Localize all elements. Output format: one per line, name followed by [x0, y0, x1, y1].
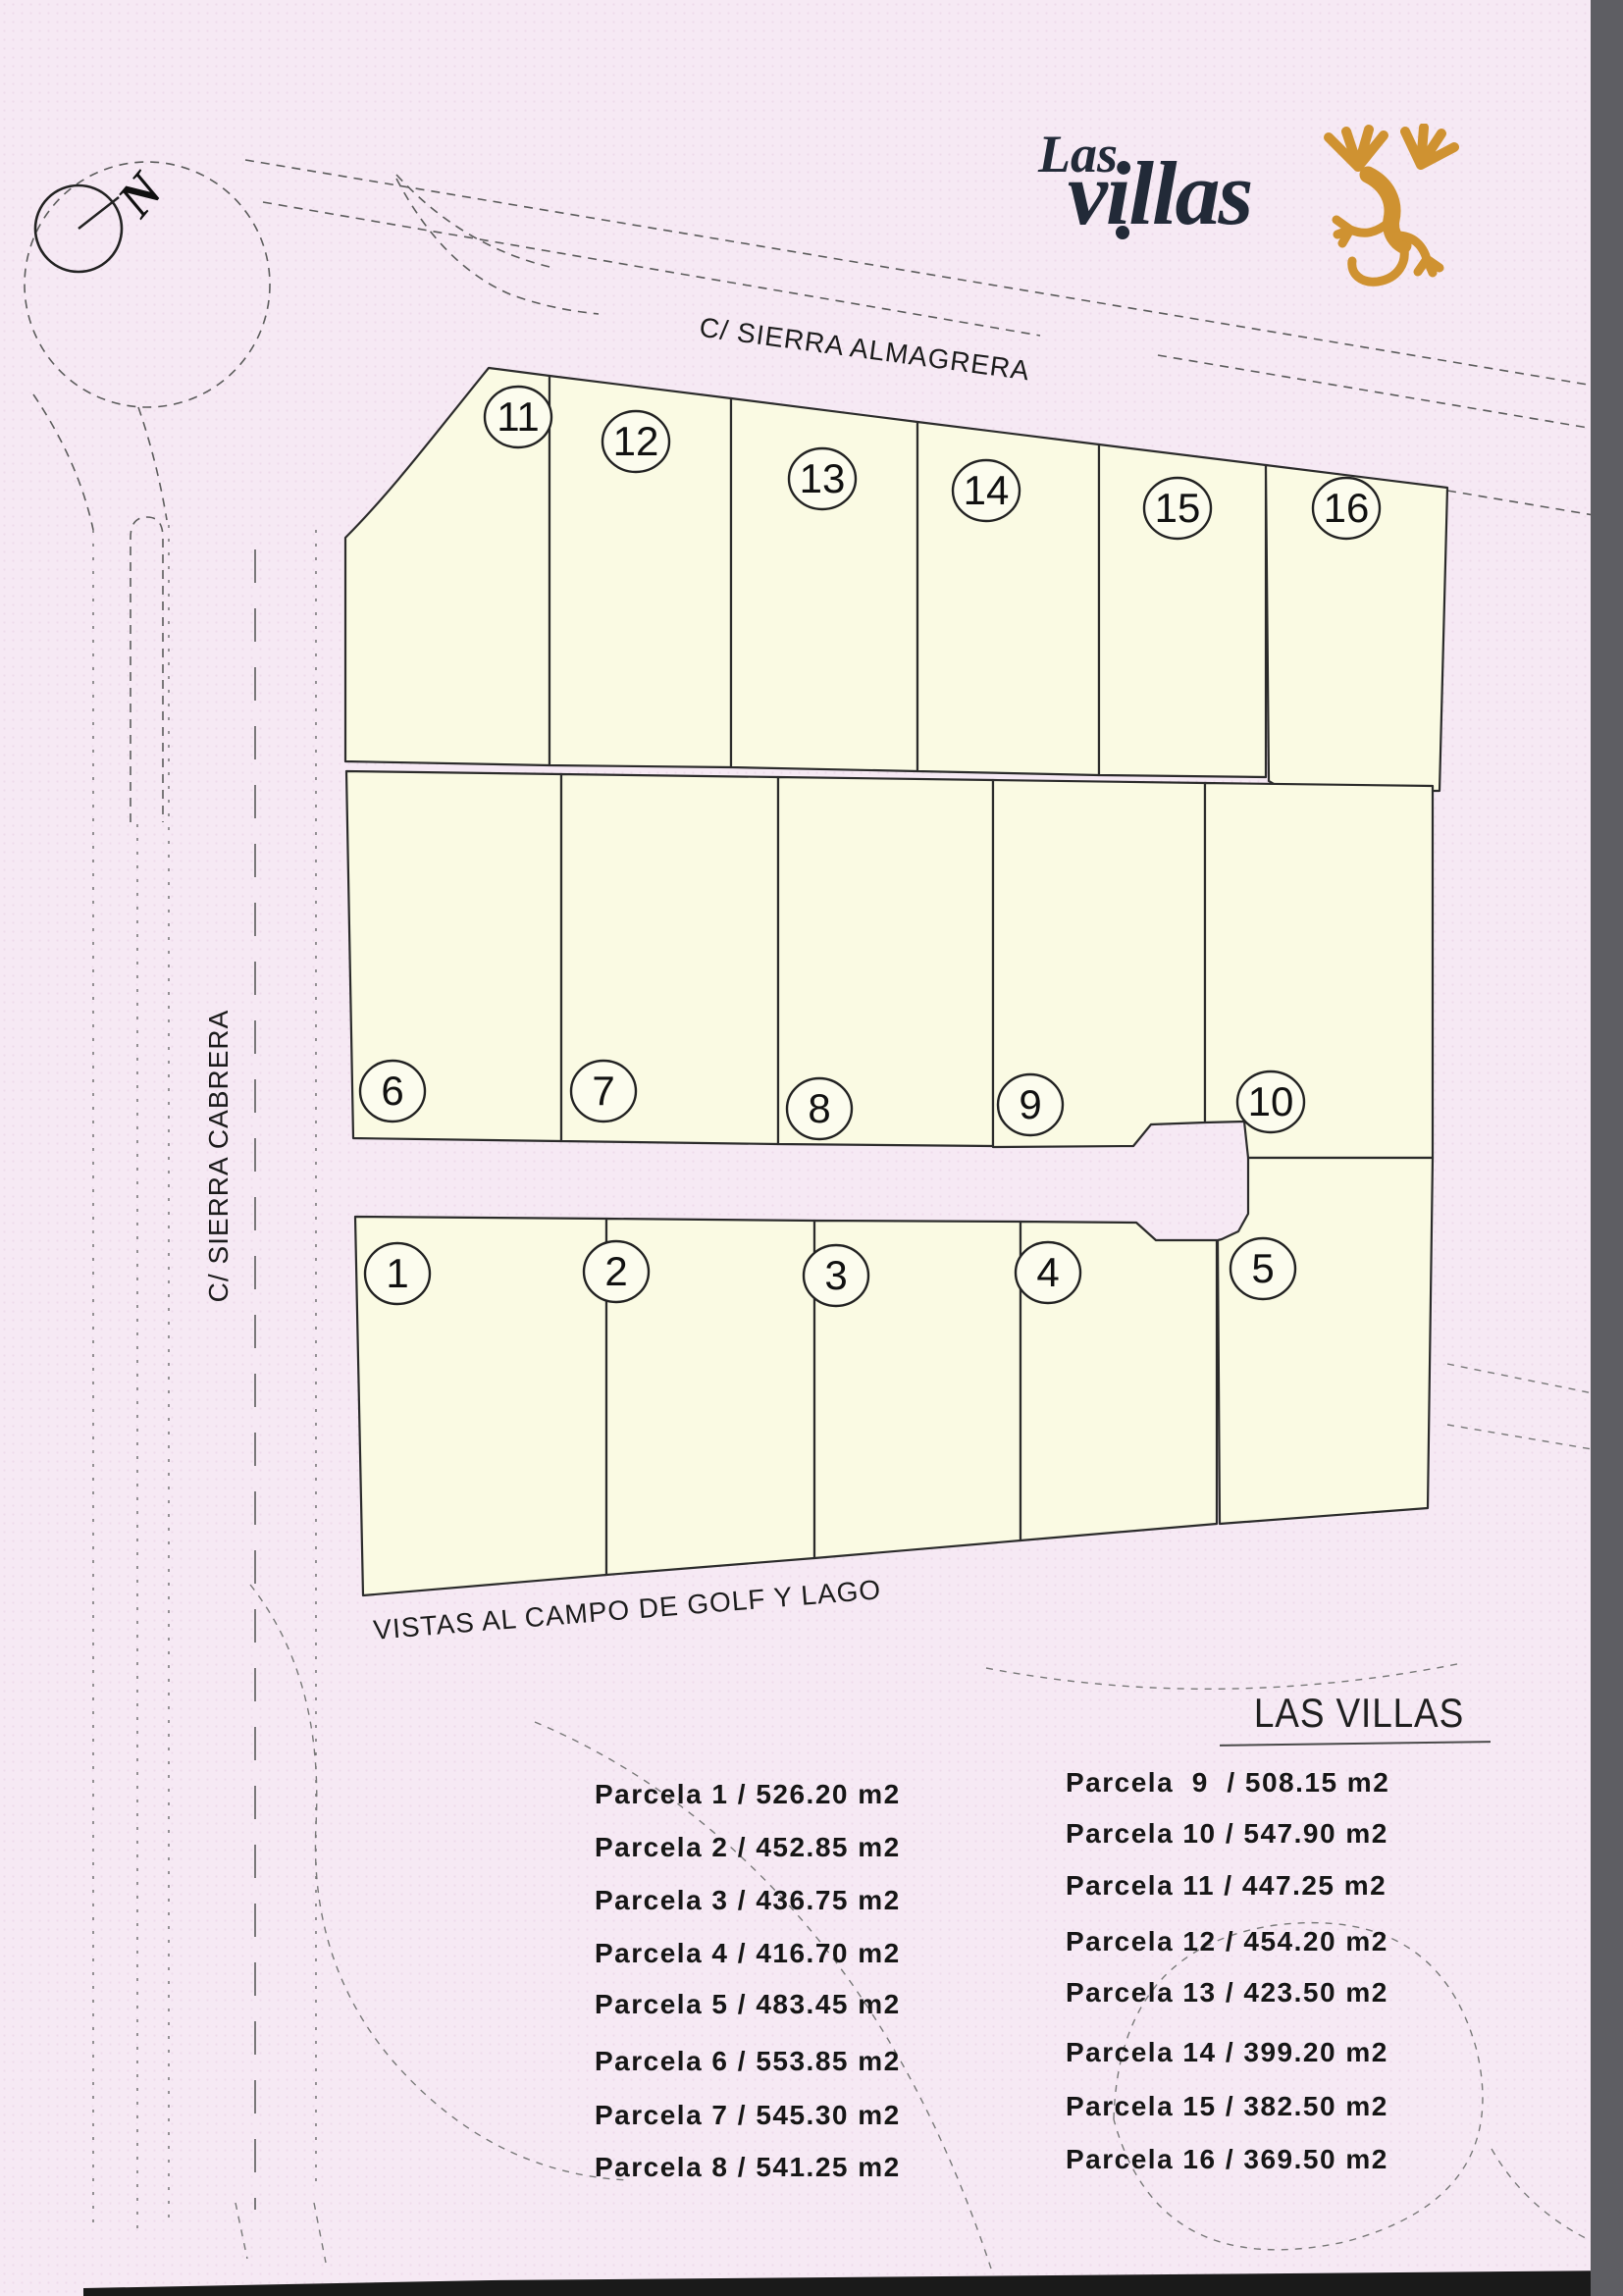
street-top-line-mid-left [263, 202, 1040, 336]
las-villas-logo: Las villas [1021, 116, 1315, 292]
parcel-9-number: 9 [1019, 1081, 1041, 1127]
parcel-12-number: 12 [613, 418, 659, 464]
parcel-11-number: 11 [497, 393, 540, 440]
legend-row-parcela-16: Parcela 16 / 369.50 m2 [1066, 2144, 1388, 2175]
parcel-7-number: 7 [592, 1068, 614, 1114]
parcel-8-marker: 8 [787, 1078, 852, 1139]
legend-row-parcela-15: Parcela 15 / 382.50 m2 [1066, 2091, 1388, 2122]
parcel-9-marker: 9 [998, 1074, 1063, 1135]
parcel-8-number: 8 [808, 1085, 830, 1131]
parcel-6-marker: 6 [360, 1061, 425, 1122]
contour-3 [250, 1585, 628, 2180]
legend-row-parcela-13: Parcela 13 / 423.50 m2 [1066, 1977, 1388, 2009]
parcel-14-marker: 14 [953, 460, 1020, 521]
parcel-16-marker: 16 [1313, 478, 1380, 539]
scan-edge-band [1591, 0, 1623, 2296]
parcel-4-number: 4 [1036, 1249, 1059, 1295]
legend-row-parcela-11: Parcela 11 / 447.25 m2 [1066, 1870, 1387, 1902]
contour-7 [236, 2203, 247, 2259]
roundabout-exit-curve-left-inner [138, 407, 167, 520]
parcel-15-marker: 15 [1144, 478, 1211, 539]
street-label-sierra-almagrera: C/ SIERRA ALMAGRERA [698, 312, 1032, 387]
legend-row-parcela-14: Parcela 14 / 399.20 m2 [1066, 2037, 1388, 2068]
parcel-11-marker: 11 [485, 387, 551, 447]
parcel-12-marker: 12 [602, 411, 669, 472]
logo-text-villas: villas [1068, 141, 1251, 245]
parcel-1-number: 1 [386, 1250, 408, 1296]
parcel-regions [345, 368, 1447, 1595]
parcel-2-number: 2 [604, 1248, 627, 1294]
parcel-3-marker: 3 [804, 1245, 868, 1306]
parcel-10-number: 10 [1248, 1078, 1294, 1124]
parcel-5-region [1218, 1158, 1433, 1524]
parcel-4-marker: 4 [1016, 1242, 1080, 1303]
contour-2 [986, 1663, 1462, 1689]
legend-row-parcela-12: Parcela 12 / 454.20 m2 [1066, 1926, 1388, 1957]
legend-row-parcela-4: Parcela 4 / 416.70 m2 [595, 1938, 901, 1969]
roundabout-exit-curve-left-outer [33, 394, 93, 530]
parcel-5-marker: 5 [1230, 1238, 1295, 1299]
compass-needle [79, 197, 119, 229]
parcel-7-marker: 7 [571, 1061, 636, 1122]
north-label: N [107, 161, 176, 228]
legend-title: LAS VILLAS [1238, 1690, 1480, 1737]
legend-row-parcela-10: Parcela 10 / 547.90 m2 [1066, 1818, 1388, 1850]
traffic-island [131, 517, 163, 822]
scanned-plan-page: 1 2 3 4 5 6 7 8 9 10 11 12 13 14 15 16 C… [0, 0, 1623, 2296]
parcel-15-number: 15 [1155, 485, 1201, 531]
contour-blob [1114, 1923, 1483, 2250]
parcel-13-marker: 13 [789, 448, 856, 509]
contour-8 [314, 2203, 326, 2263]
legend-row-parcela-9: Parcela 9 / 508.15 m2 [1066, 1767, 1389, 1799]
street-top-line-mid-right [1158, 355, 1623, 434]
street-corner-curve [396, 179, 599, 314]
legend-row-parcela-3: Parcela 3 / 436.75 m2 [595, 1885, 901, 1916]
north-compass: N [35, 161, 176, 272]
legend-row-parcela-7: Parcela 7 / 545.30 m2 [595, 2100, 901, 2131]
parcel-13-number: 13 [800, 455, 846, 501]
legend-row-parcela-5: Parcela 5 / 483.45 m2 [595, 1989, 901, 2020]
parcel-10-marker: 10 [1237, 1071, 1304, 1132]
parcel-16-number: 16 [1324, 485, 1370, 531]
parcel-3-number: 3 [824, 1252, 847, 1298]
legend-row-parcela-2: Parcela 2 / 452.85 m2 [595, 1832, 901, 1863]
parcel-2-marker: 2 [584, 1241, 649, 1302]
scan-bottom-strip [83, 2270, 1623, 2296]
street-label-sierra-cabrera: C/ SIERRA CABRERA [203, 1010, 234, 1303]
parcel-5-number: 5 [1251, 1245, 1274, 1291]
parcel-1-marker: 1 [365, 1243, 430, 1304]
parcel-14-number: 14 [964, 467, 1010, 513]
legend-row-parcela-6: Parcela 6 / 553.85 m2 [595, 2046, 901, 2077]
legend-row-parcela-1: Parcela 1 / 526.20 m2 [595, 1779, 901, 1810]
legend-row-parcela-8: Parcela 8 / 541.25 m2 [595, 2152, 901, 2183]
parcel-6-number: 6 [381, 1068, 403, 1114]
gecko-logo-icon [1307, 124, 1464, 300]
